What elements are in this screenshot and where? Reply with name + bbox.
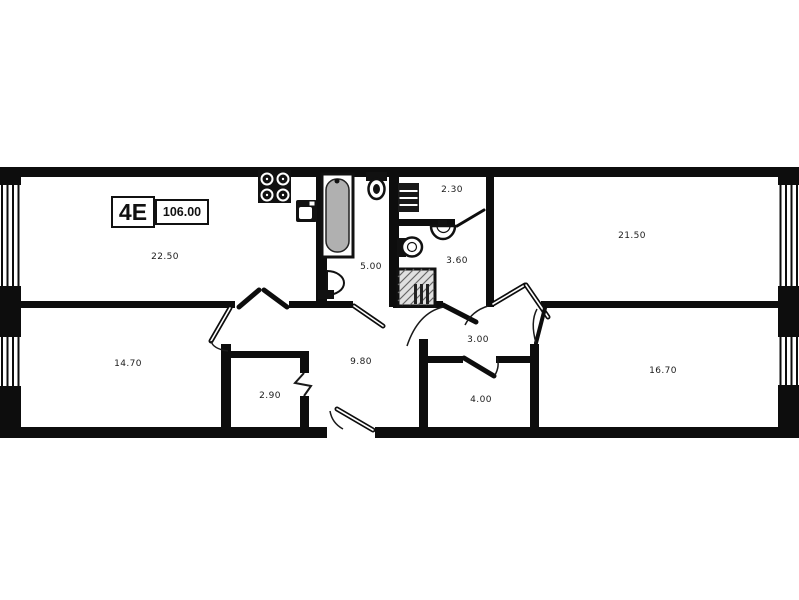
stove-icon <box>258 170 291 203</box>
room-area-label-hallway: 9.80 <box>350 357 372 367</box>
window-icon <box>778 185 799 286</box>
door-swing-icon <box>239 290 287 307</box>
window-icon <box>778 337 799 385</box>
unit-total-area: 106.00 <box>155 199 209 225</box>
room-area-label-shower-wc: 3.60 <box>446 256 468 266</box>
bathtub-icon <box>322 174 353 257</box>
door-swing-icon <box>295 373 311 396</box>
room-area-label-storage: 2.30 <box>441 185 463 195</box>
door-swing-icon <box>457 210 484 226</box>
door-swing-icon <box>465 285 548 325</box>
room-area-label-living-kitchen: 22.50 <box>151 252 179 262</box>
unit-badge: 4E 106.00 <box>111 196 209 228</box>
door-swing-icon <box>533 308 545 343</box>
door-swing-icon <box>464 358 498 376</box>
door-swing-icon <box>407 305 476 346</box>
room-area-label-vestibule: 3.00 <box>467 335 489 345</box>
door-swing-icon <box>354 306 383 326</box>
shelving-icon <box>398 183 419 212</box>
window-icon <box>0 337 21 386</box>
room-area-label-bathroom: 5.00 <box>360 262 382 272</box>
wc-toilet-icon <box>397 238 422 258</box>
kitchen-sink-icon <box>296 200 317 222</box>
entrance-door-icon <box>330 409 373 430</box>
toilet-icon <box>366 172 387 199</box>
room-area-label-bedroom-bottom-right: 16.70 <box>649 366 677 376</box>
unit-type-label: 4E <box>111 196 155 228</box>
room-area-label-wardrobe: 2.90 <box>259 391 281 401</box>
shower-icon <box>398 269 435 306</box>
room-area-label-bedroom-bottom-left: 14.70 <box>114 359 142 369</box>
window-icon <box>0 185 21 286</box>
room-area-label-bedroom-top-right: 21.50 <box>618 231 646 241</box>
floor-plan-canvas: 4E 106.00 22.50 5.00 2.30 3.60 21.50 14.… <box>0 0 799 600</box>
floor-plan <box>0 0 799 600</box>
room-area-label-closet: 4.00 <box>470 395 492 405</box>
